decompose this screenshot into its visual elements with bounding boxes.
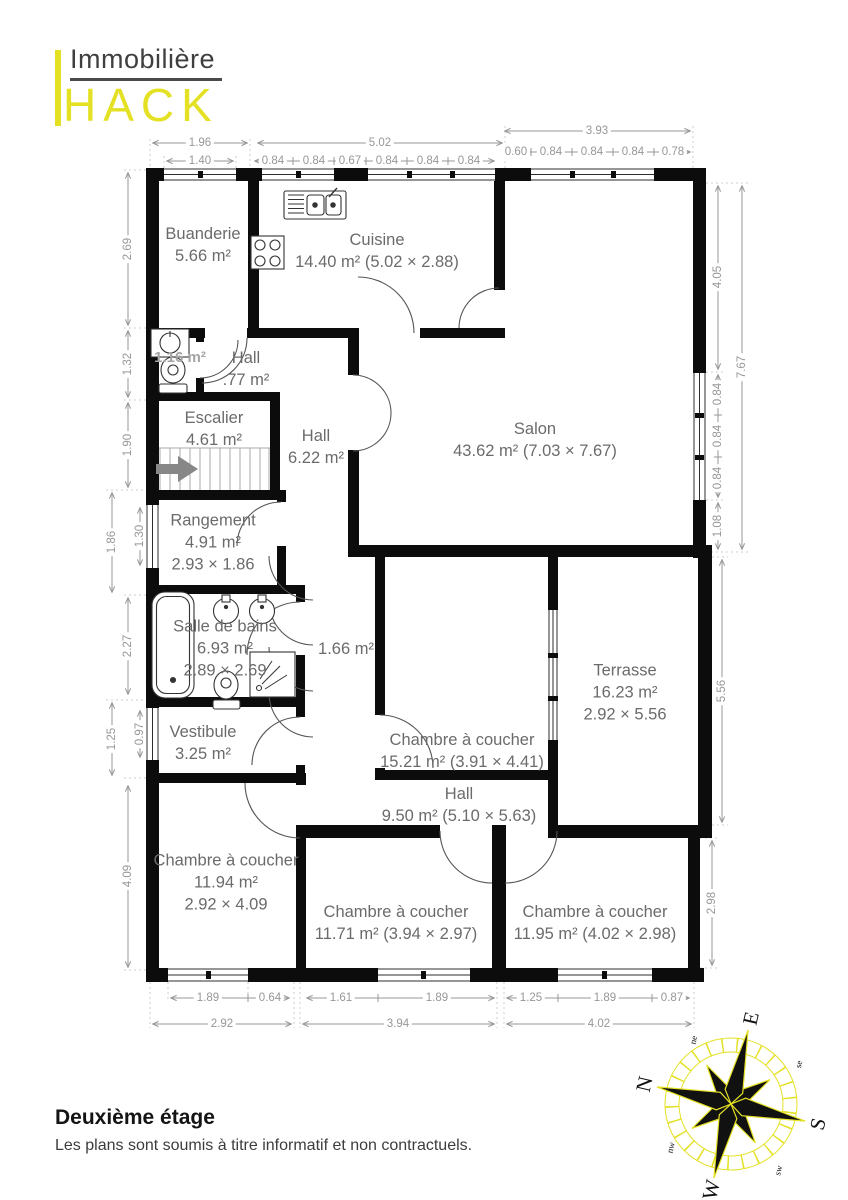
dim-label: 0.84 <box>537 146 565 158</box>
room-name: Escalier <box>185 408 244 430</box>
compass-label-w: W <box>697 1177 725 1200</box>
room-label-chambre-1194: Chambre à coucher 11.94 m² 2.92 × 4.09 <box>154 850 299 915</box>
dim-label: 0.84 <box>300 155 328 167</box>
room-area: 15.21 m² (3.91 × 4.41) <box>380 752 544 774</box>
dim-label: 1.89 <box>423 992 451 1004</box>
dim-label: 2.98 <box>706 889 718 917</box>
stove-icon <box>251 236 284 269</box>
room-label-chambre-1521: Chambre à coucher 15.21 m² (3.91 × 4.41) <box>380 730 544 774</box>
room-size: 2.93 × 1.86 <box>170 554 255 576</box>
compass-rose: N E S W ne se sw nw <box>611 989 848 1200</box>
room-label-chambre-1195: Chambre à coucher 11.95 m² (4.02 × 2.98) <box>514 902 677 946</box>
room-label-hall-622: Hall 6.22 m² <box>288 426 344 470</box>
room-name: Hall <box>382 784 537 806</box>
compass-label-s: S <box>805 1116 831 1133</box>
compass-label-sw: sw <box>772 1164 784 1176</box>
dim-label: 0.67 <box>336 155 364 167</box>
dim-label: 7.67 <box>736 353 748 381</box>
dim-label: 1.30 <box>134 522 146 550</box>
room-area: 3.25 m² <box>170 744 237 766</box>
compass-label-nw: nw <box>665 1141 677 1154</box>
compass-label-ne: ne <box>688 1035 700 1046</box>
stairs-icon <box>156 448 270 490</box>
dim-label: 0.84 <box>619 146 647 158</box>
room-area: 1.16 m² <box>154 348 206 368</box>
dim-label: 5.56 <box>716 677 728 705</box>
floor-title: Deuxième étage <box>55 1106 472 1130</box>
room-label-closet: 1.66 m² <box>318 639 374 661</box>
dim-label: 1.89 <box>591 992 619 1004</box>
room-label-salon: Salon 43.62 m² (7.03 × 7.67) <box>453 419 617 463</box>
room-name: Cuisine <box>295 230 459 252</box>
dim-label: 5.02 <box>366 137 394 149</box>
dim-label: 0.60 <box>502 146 530 158</box>
room-name: Terrasse <box>583 660 666 682</box>
room-label-terrasse: Terrasse 16.23 m² 2.92 × 5.56 <box>583 660 666 725</box>
dim-label: 4.09 <box>122 862 134 890</box>
room-label-hall-950: Hall 9.50 m² (5.10 × 5.63) <box>382 784 537 828</box>
room-area: 5.66 m² <box>165 246 240 268</box>
room-label-vestibule: Vestibule 3.25 m² <box>170 722 237 766</box>
room-area: 9.50 m² (5.10 × 5.63) <box>382 806 537 828</box>
disclaimer-text: Les plans sont soumis à titre informatif… <box>55 1137 472 1155</box>
room-area: 6.93 m² <box>173 638 277 660</box>
room-label-cuisine: Cuisine 14.40 m² (5.02 × 2.88) <box>295 230 459 274</box>
dim-label: 4.02 <box>585 1018 613 1030</box>
kitchen-sink-icon <box>284 188 346 219</box>
floor-plan: N E S W ne se sw nw <box>0 0 848 1200</box>
dim-label: 3.94 <box>384 1018 412 1030</box>
dim-label: 0.84 <box>259 155 287 167</box>
dim-label: 0.84 <box>578 146 606 158</box>
room-size: 2.92 × 4.09 <box>154 894 299 916</box>
dim-label: 1.25 <box>517 992 545 1004</box>
stairs-direction-arrow <box>156 456 198 482</box>
room-area: 43.62 m² (7.03 × 7.67) <box>453 441 617 463</box>
dim-label: 1.08 <box>712 512 724 540</box>
dim-label: 1.90 <box>122 431 134 459</box>
dim-label: 0.78 <box>659 146 687 158</box>
dim-label: 1.25 <box>106 725 118 753</box>
dim-label: 0.84 <box>712 464 724 492</box>
room-area: 6.22 m² <box>288 448 344 470</box>
dim-label: 2.69 <box>122 235 134 263</box>
room-area: 16.23 m² <box>583 682 666 704</box>
compass-label-n: N <box>631 1074 658 1094</box>
dim-label: 0.97 <box>134 720 146 748</box>
dim-label: 0.84 <box>373 155 401 167</box>
room-size: 2.92 × 5.56 <box>583 704 666 726</box>
dim-label: 1.32 <box>122 350 134 378</box>
room-label-wc: 1.16 m² <box>154 348 206 368</box>
room-name: Chambre à coucher <box>154 850 299 872</box>
dim-label: 0.84 <box>414 155 442 167</box>
room-area: .77 m² <box>223 370 270 392</box>
compass-label-se: se <box>793 1059 804 1069</box>
room-area: 1.66 m² <box>318 639 374 661</box>
dim-label: 1.89 <box>194 992 222 1004</box>
room-name: Chambre à coucher <box>315 902 478 924</box>
dim-label: 4.05 <box>712 263 724 291</box>
room-name: Hall <box>288 426 344 448</box>
room-area: 4.61 m² <box>185 430 244 452</box>
room-area: 11.95 m² (4.02 × 2.98) <box>514 924 677 946</box>
room-area: 4.91 m² <box>170 532 255 554</box>
room-label-hall-077: Hall .77 m² <box>223 348 270 392</box>
dim-label: 1.86 <box>106 528 118 556</box>
compass-label-e: E <box>738 1009 764 1027</box>
room-label-rangement: Rangement 4.91 m² 2.93 × 1.86 <box>170 510 255 575</box>
room-name: Salle de bains <box>173 616 277 638</box>
footer: Deuxième étage Les plans sont soumis à t… <box>55 1106 472 1155</box>
room-area: 14.40 m² (5.02 × 2.88) <box>295 252 459 274</box>
dim-label: 0.87 <box>658 992 686 1004</box>
room-name: Chambre à coucher <box>514 902 677 924</box>
dim-label: 3.93 <box>583 125 611 137</box>
room-name: Hall <box>223 348 270 370</box>
room-area: 11.71 m² (3.94 × 2.97) <box>315 924 478 946</box>
dim-label: 0.64 <box>256 992 284 1004</box>
dim-label: 1.61 <box>327 992 355 1004</box>
room-label-escalier: Escalier 4.61 m² <box>185 408 244 452</box>
room-name: Vestibule <box>170 722 237 744</box>
dim-label: 0.84 <box>712 380 724 408</box>
room-name: Buanderie <box>165 224 240 246</box>
room-name: Salon <box>453 419 617 441</box>
room-name: Chambre à coucher <box>380 730 544 752</box>
dim-label: 2.92 <box>208 1018 236 1030</box>
room-size: 2.89 × 2.69 <box>173 660 277 682</box>
dim-label: 1.40 <box>186 155 214 167</box>
dim-label: 0.84 <box>712 422 724 450</box>
room-label-salle-de-bains: Salle de bains 6.93 m² 2.89 × 2.69 <box>173 616 277 681</box>
room-label-chambre-1171: Chambre à coucher 11.71 m² (3.94 × 2.97) <box>315 902 478 946</box>
dim-label: 2.27 <box>122 632 134 660</box>
room-area: 11.94 m² <box>154 872 299 894</box>
dim-label: 1.96 <box>186 137 214 149</box>
room-name: Rangement <box>170 510 255 532</box>
room-label-buanderie: Buanderie 5.66 m² <box>165 224 240 268</box>
dim-label: 0.84 <box>455 155 483 167</box>
